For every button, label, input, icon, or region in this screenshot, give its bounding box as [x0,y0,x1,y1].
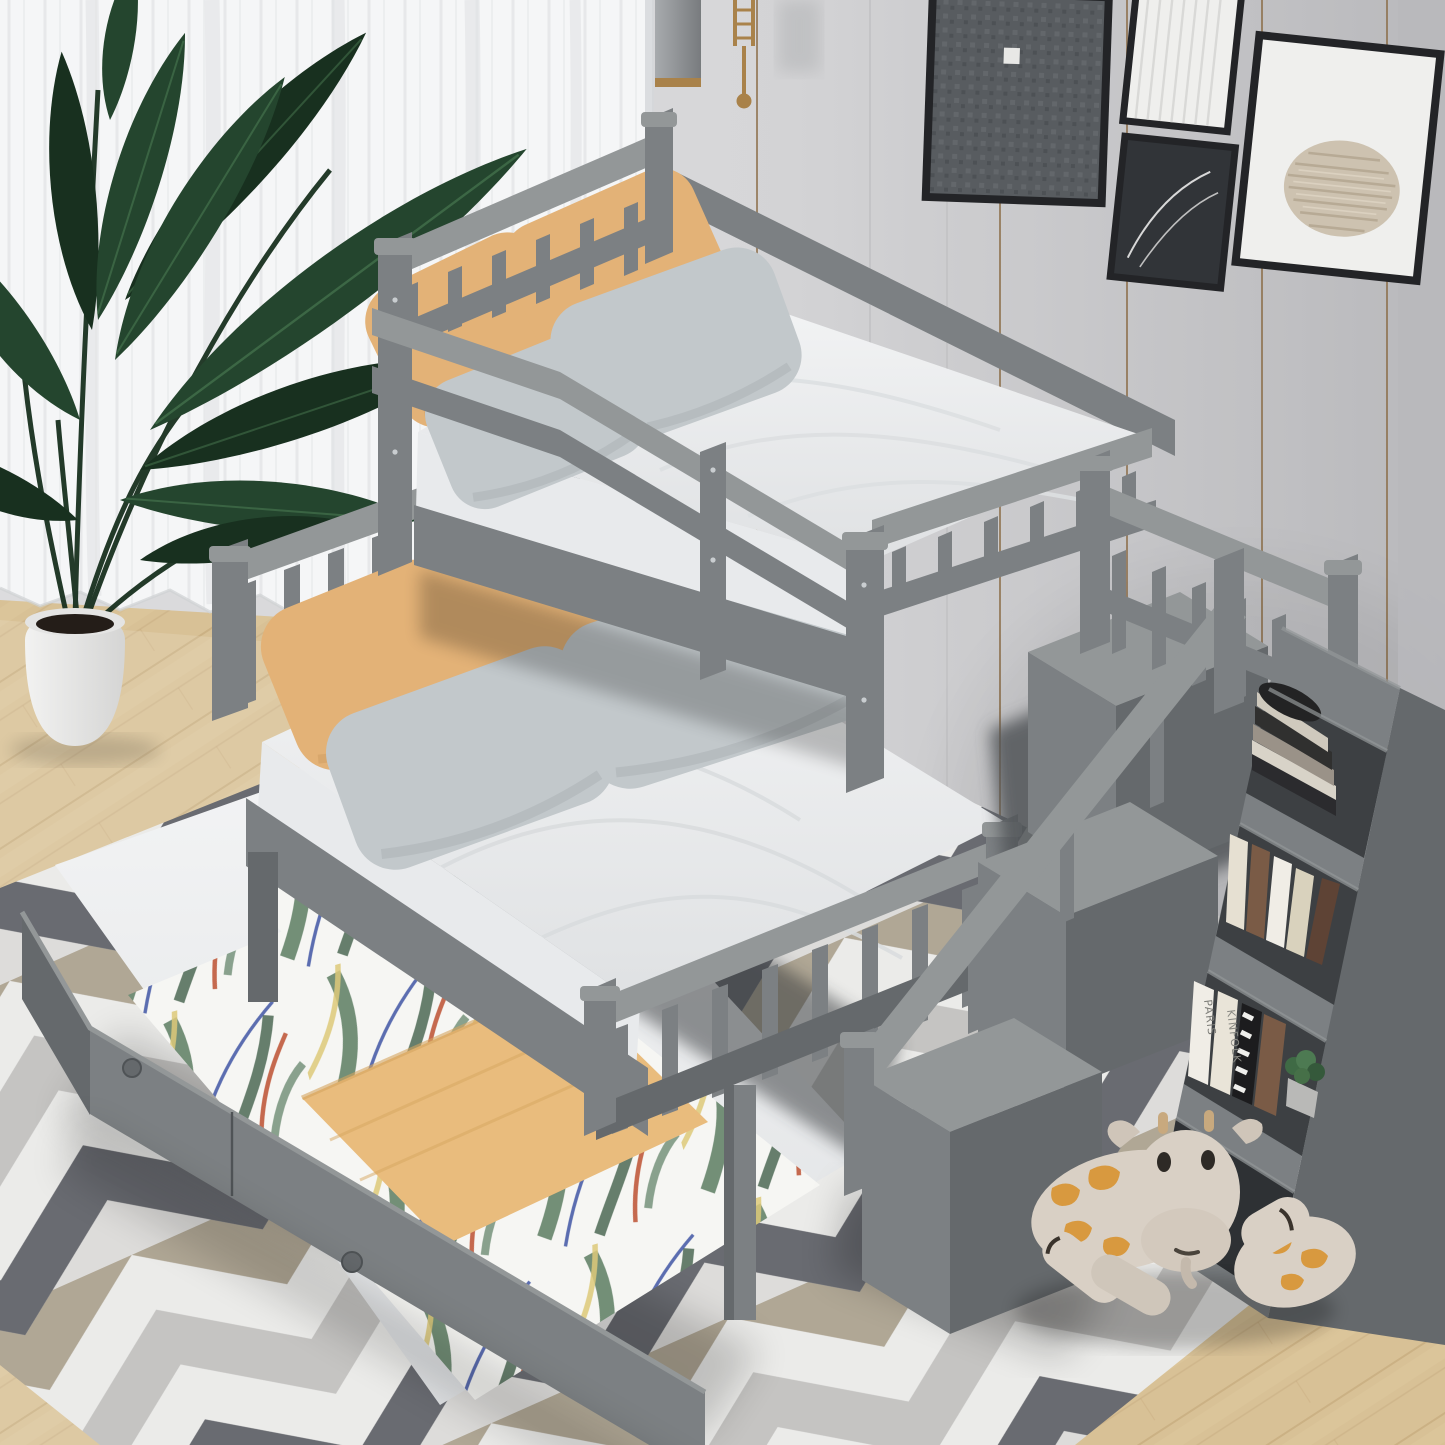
trundle-drawer-knob [342,1252,362,1272]
lower-bed-leg [248,852,278,1002]
product-photo: PARIS KINFOLK [0,0,1445,1445]
wall-art-frame-1 [922,0,1113,207]
wall-art-frame-2 [1119,0,1246,135]
scene-svg: PARIS KINFOLK [0,0,1445,1445]
trundle-drawer-knob [123,1059,141,1077]
wall-art-frame-4 [1231,31,1445,286]
wall-art-frame-3 [1106,132,1239,292]
upper-foot-post [846,525,884,793]
